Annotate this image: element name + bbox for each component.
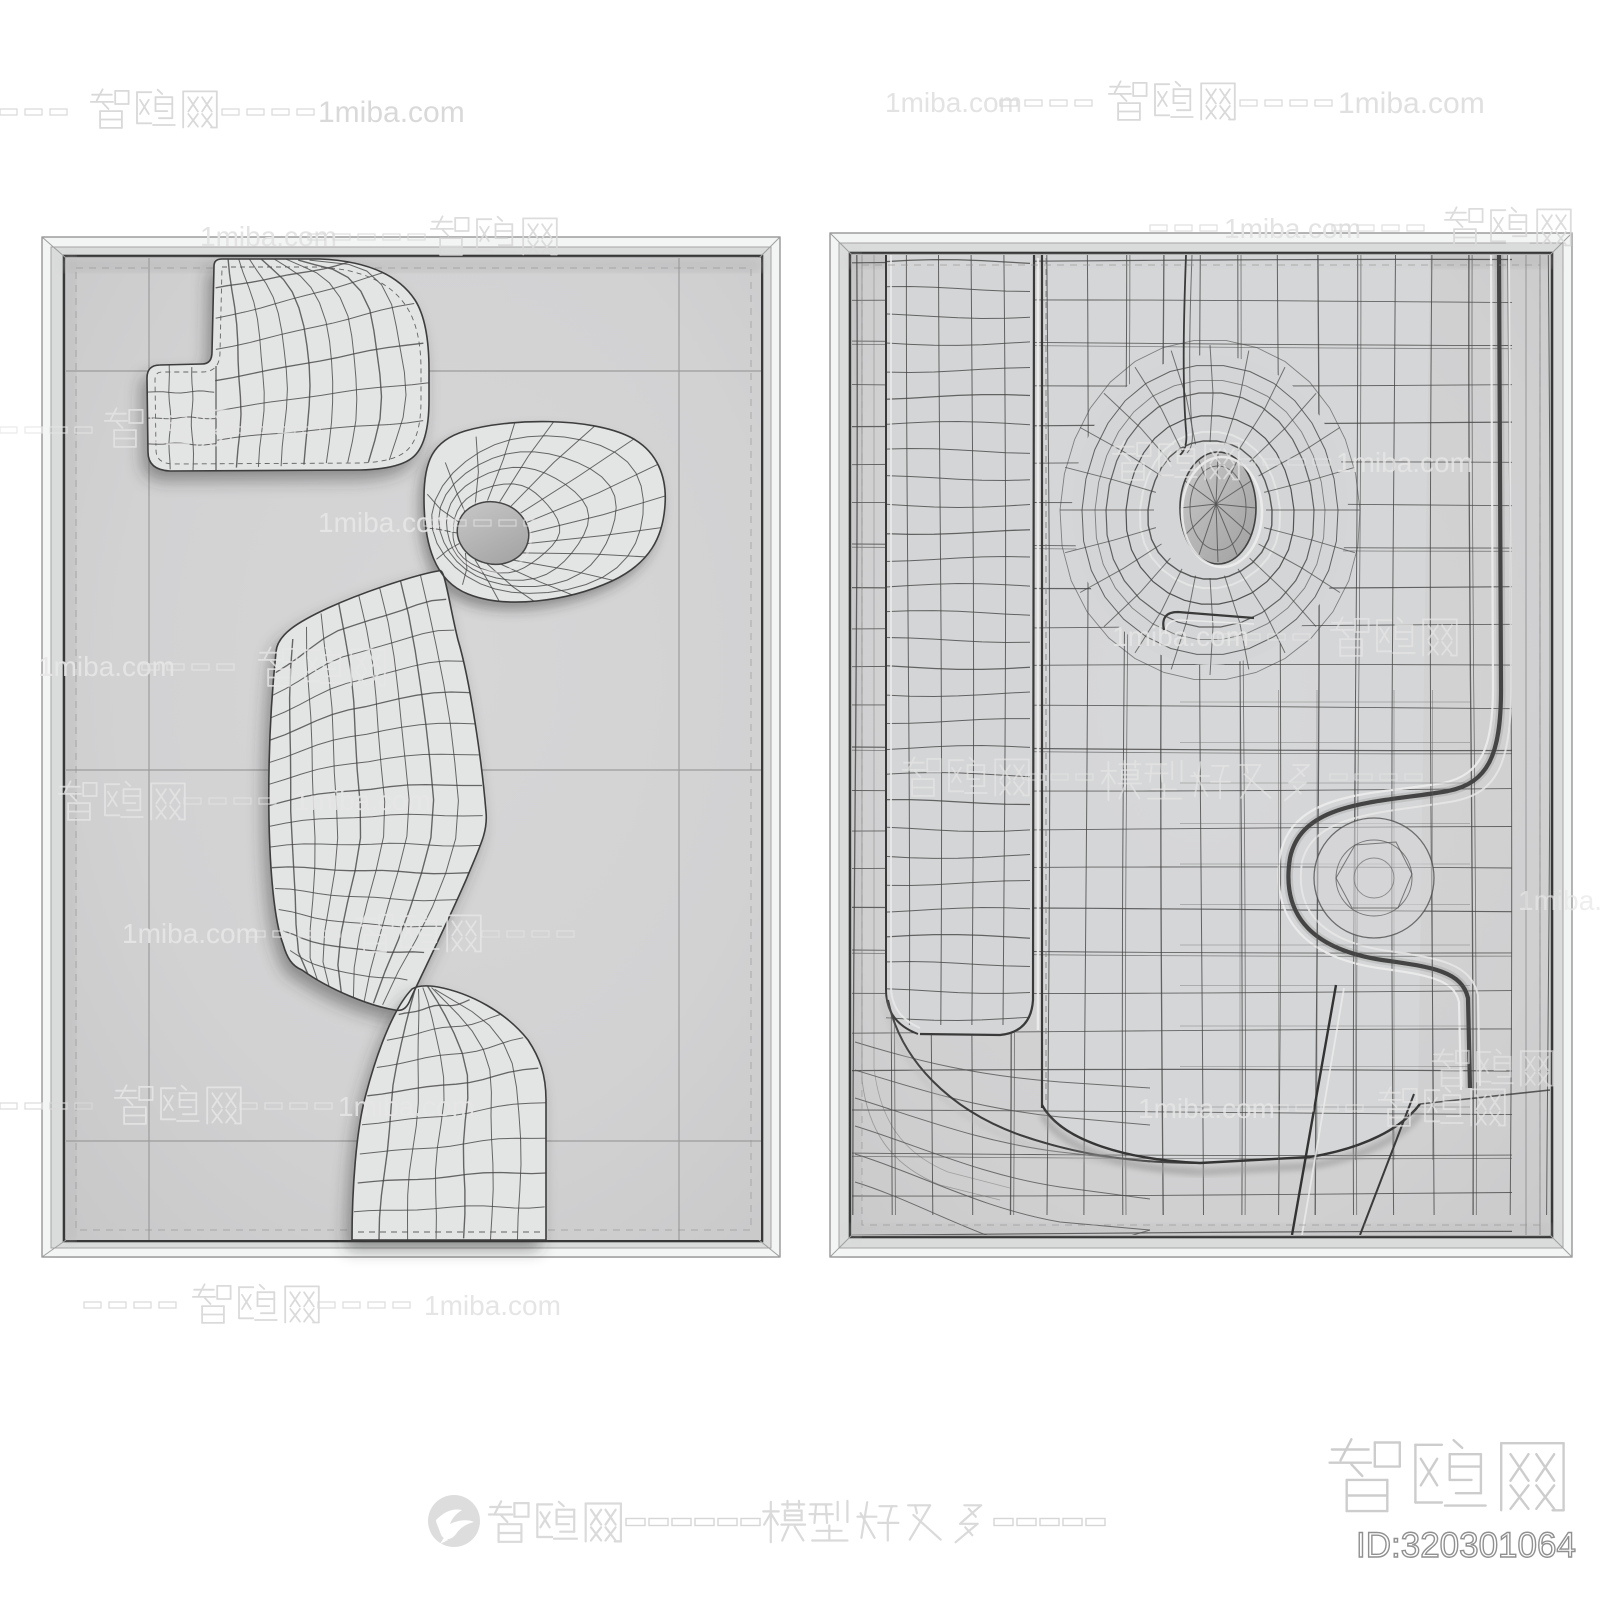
svg-text:1miba.com: 1miba.com [200,221,337,252]
svg-text:1miba.com: 1miba.com [318,507,455,538]
svg-text:1miba.com: 1miba.com [1338,87,1485,120]
svg-text:1miba.com: 1miba.com [294,785,431,816]
svg-text:ID:320301064: ID:320301064 [1356,1526,1576,1565]
svg-text:1miba.com: 1miba.com [1112,621,1249,652]
svg-text:1miba.com: 1miba.com [338,1091,475,1122]
svg-text:1miba.com: 1miba.com [885,87,1022,118]
svg-text:1miba.com: 1miba.com [122,918,259,949]
svg-text:1miba.com: 1miba.com [1138,1093,1275,1124]
svg-text:1miba.com: 1miba.com [38,651,175,682]
svg-text:1miba.com: 1miba.com [1518,885,1600,916]
svg-text:1miba.com: 1miba.com [318,96,465,129]
svg-text:1miba.com: 1miba.com [424,1290,561,1321]
svg-text:1miba.com: 1miba.com [1336,447,1473,478]
svg-text:1miba.com: 1miba.com [1224,213,1361,244]
